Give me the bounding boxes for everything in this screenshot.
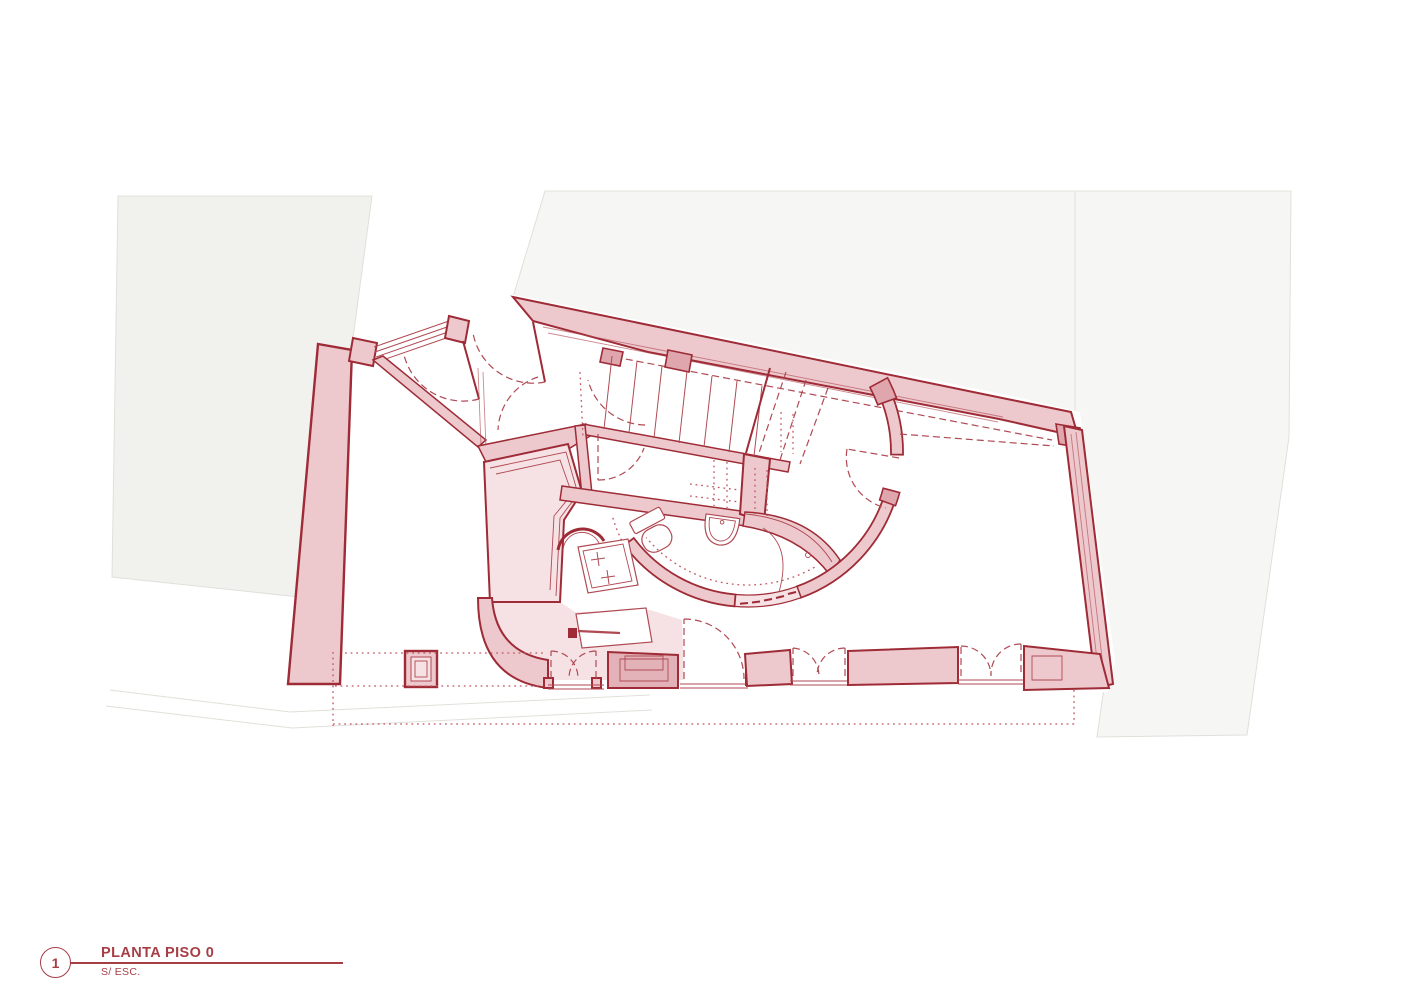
- cabinet-symbol: [568, 608, 652, 648]
- planter-block: [608, 652, 678, 688]
- figure-number-badge: 1: [40, 947, 71, 978]
- floor-plan-drawing: [0, 0, 1414, 1000]
- column: [405, 651, 437, 687]
- shower-tray-symbol: [578, 539, 638, 593]
- title-rule: [70, 962, 343, 964]
- corner-wall: [1024, 646, 1109, 690]
- drawing-title: PLANTA PISO 0: [101, 945, 214, 961]
- drawing-scale: S/ ESC.: [101, 966, 140, 978]
- drawing-sheet: { "title_block": { "figure_number": "1",…: [0, 0, 1414, 1000]
- figure-number: 1: [52, 955, 60, 971]
